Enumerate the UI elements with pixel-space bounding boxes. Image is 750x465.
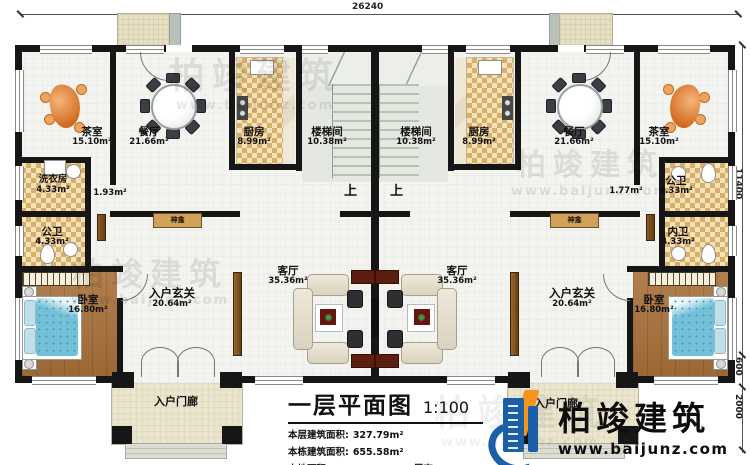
dimension-line-right bbox=[742, 45, 743, 453]
entry-door-arc bbox=[177, 347, 215, 377]
wall bbox=[379, 211, 410, 217]
window bbox=[15, 166, 24, 200]
wall bbox=[627, 266, 659, 272]
porch-column bbox=[222, 426, 242, 444]
wall bbox=[91, 266, 123, 272]
door-opening bbox=[558, 45, 584, 52]
window bbox=[728, 166, 737, 200]
stair-up-label-left: 上 bbox=[344, 180, 357, 199]
door-leaf bbox=[97, 214, 106, 241]
wall bbox=[15, 266, 91, 272]
wall bbox=[449, 164, 521, 170]
window bbox=[466, 45, 510, 54]
porch-column bbox=[112, 426, 132, 444]
wall bbox=[15, 211, 91, 217]
wardrobe-right bbox=[648, 272, 716, 286]
room-label-kitchen-left: 厨房8.99m² bbox=[237, 126, 271, 148]
stair-landing-left bbox=[302, 52, 371, 86]
porch-label-left: 入户门廊 bbox=[154, 396, 198, 409]
room-label-foyer-right: 入户玄关20.64m² bbox=[549, 287, 595, 310]
room-label-bedroom-left: 卧室16.80m² bbox=[68, 294, 107, 316]
room-label-stair-left: 楼梯间10.38m² bbox=[307, 126, 346, 148]
room-label-laundry: 洗衣房4.33m² bbox=[36, 175, 70, 196]
wall bbox=[659, 211, 735, 217]
entry-door-arc bbox=[141, 347, 179, 377]
room-label-tea-left: 茶室15.10m² bbox=[72, 126, 111, 148]
kitchen-counter-left bbox=[283, 58, 295, 164]
wall bbox=[597, 211, 640, 217]
washer bbox=[44, 160, 66, 175]
wall bbox=[110, 211, 153, 217]
sheet-scale: 1:100 bbox=[423, 398, 469, 417]
porch-pier bbox=[220, 372, 242, 388]
area-label-passage-left: 1.93m² bbox=[93, 188, 127, 198]
room-label-bath-left: 公卫4.33m² bbox=[35, 226, 69, 248]
wall bbox=[117, 298, 123, 376]
room-label-dining-left: 餐厅21.66m² bbox=[129, 126, 168, 148]
window bbox=[658, 45, 710, 54]
shrine-niche-right: 神龛 bbox=[550, 213, 599, 228]
area-label-passage-right: 1.77m² bbox=[609, 186, 643, 196]
wall bbox=[229, 45, 235, 167]
room-label-tea-right: 茶室15.10m² bbox=[639, 126, 678, 148]
kitchen-sink-right bbox=[478, 60, 502, 75]
wall bbox=[200, 211, 240, 217]
wall bbox=[510, 211, 550, 217]
window bbox=[422, 45, 448, 54]
sheet-title: 一层平面图 bbox=[288, 386, 413, 420]
brand-logo-icon bbox=[486, 388, 556, 460]
door-opening bbox=[166, 45, 192, 52]
wall bbox=[627, 298, 633, 376]
roof-protrusion bbox=[118, 14, 170, 45]
dimension-top-width: 26240 bbox=[352, 2, 383, 12]
dimension-right-lower: 2000 bbox=[733, 394, 743, 419]
wall bbox=[659, 266, 735, 272]
floor-plan-sheet: 26240 11400 600 2000 bbox=[0, 0, 750, 465]
window bbox=[728, 226, 737, 256]
kitchen-counter-right bbox=[455, 58, 467, 164]
wall bbox=[229, 164, 301, 170]
window bbox=[240, 45, 284, 54]
wall bbox=[634, 45, 640, 185]
stair-landing-right bbox=[379, 52, 448, 86]
bath-sink bbox=[671, 246, 686, 261]
porch-steps-left bbox=[126, 444, 226, 458]
stat-floor-area: 本层建筑面积:327.79m² bbox=[288, 427, 483, 441]
stat-building-area: 本栋建筑面积:655.58m² bbox=[288, 444, 483, 458]
foyer-screen-right bbox=[510, 272, 519, 356]
roof-protrusion bbox=[170, 14, 180, 45]
porch-pier bbox=[508, 372, 530, 388]
shrine-niche-left: 神龛 bbox=[153, 213, 202, 228]
wall bbox=[296, 45, 302, 171]
room-label-living-right: 客厅35.36m² bbox=[437, 265, 476, 287]
stove-right bbox=[502, 96, 513, 120]
wall bbox=[448, 45, 454, 171]
door-leaf bbox=[646, 214, 655, 241]
roof-protrusion bbox=[550, 14, 560, 45]
toilet bbox=[701, 244, 716, 264]
brand-name: 柏竣建筑 bbox=[558, 392, 729, 440]
window bbox=[15, 70, 24, 132]
roof-protrusion bbox=[560, 14, 612, 45]
wall bbox=[659, 157, 735, 163]
window bbox=[302, 45, 328, 54]
bed-right bbox=[668, 286, 728, 368]
porch-pier bbox=[112, 372, 134, 388]
window bbox=[15, 226, 24, 256]
room-label-public-bath-right: 公卫4.33m² bbox=[659, 175, 693, 197]
room-label-stair-right: 楼梯间10.38m² bbox=[396, 126, 435, 148]
window bbox=[40, 45, 92, 54]
brand-logo-text: 柏竣建筑 www.baijunz.com bbox=[558, 392, 729, 458]
window bbox=[255, 376, 303, 385]
kitchen-sink-left bbox=[250, 60, 274, 75]
brand-website: www.baijunz.com bbox=[558, 440, 729, 458]
room-label-kitchen-right: 厨房8.99m² bbox=[462, 126, 496, 148]
window bbox=[32, 376, 96, 385]
toilet bbox=[701, 163, 716, 183]
wall bbox=[110, 45, 116, 185]
foyer-screen-left bbox=[233, 272, 242, 356]
stove-left bbox=[237, 96, 248, 120]
room-label-foyer-left: 入户玄关20.64m² bbox=[149, 287, 195, 310]
wall bbox=[340, 211, 371, 217]
room-label-dining-right: 餐厅21.66m² bbox=[554, 126, 593, 148]
wall bbox=[515, 45, 521, 167]
entry-door-arc bbox=[541, 347, 579, 377]
stat-footprint-and-height: 占地面积:341.02m² 层高:3.9m bbox=[288, 461, 483, 465]
stair-up-label-right: 上 bbox=[390, 180, 403, 199]
window bbox=[728, 298, 737, 360]
room-label-bedroom-right: 卧室16.80m² bbox=[634, 294, 673, 316]
window bbox=[447, 376, 495, 385]
title-block: 一层平面图 1:100 本层建筑面积:327.79m² 本栋建筑面积:655.5… bbox=[288, 386, 483, 465]
room-label-private-bath-right: 内卫4.33m² bbox=[661, 226, 695, 248]
room-label-living-left: 客厅35.36m² bbox=[268, 265, 307, 287]
window bbox=[654, 376, 718, 385]
window bbox=[728, 70, 737, 132]
entry-door-arc bbox=[577, 347, 615, 377]
wardrobe-left bbox=[22, 272, 90, 286]
